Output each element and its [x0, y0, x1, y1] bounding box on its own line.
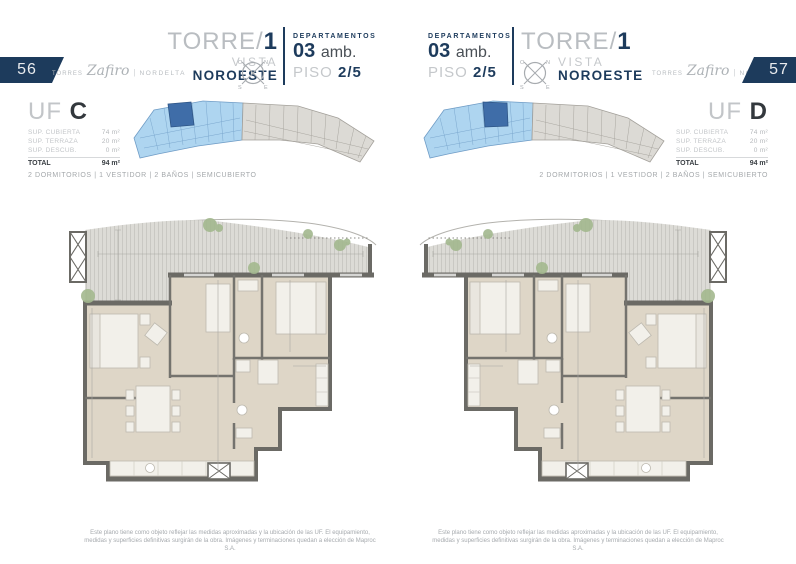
surface-table-right: SUP. CUBIERTA74 m² SUP. TERRAZA20 m² SUP…	[676, 128, 768, 167]
brand-name: Zafiro	[687, 63, 730, 79]
svg-text:O: O	[520, 60, 525, 66]
surface-row: SUP. TERRAZA20 m²	[28, 137, 120, 146]
header-divider-left	[283, 27, 285, 85]
dept-block-left: DEPARTAMENTOS 03 amb. PISO 2/5	[293, 33, 376, 81]
surface-row: SUP. TERRAZA20 m²	[676, 137, 768, 146]
brand-divider: |	[133, 68, 135, 77]
tower-title-left: TORRE/1	[140, 28, 278, 56]
keyplan-highlight-unit-d	[483, 102, 508, 127]
dept-label: DEPARTAMENTOS	[428, 33, 511, 40]
brand-divider: |	[733, 68, 735, 77]
svg-text:N: N	[264, 60, 268, 66]
surface-row: SUP. CUBIERTA74 m²	[28, 128, 120, 137]
surface-row: SUP. CUBIERTA74 m²	[676, 128, 768, 137]
surface-table-left: SUP. CUBIERTA74 m² SUP. TERRAZA20 m² SUP…	[28, 128, 120, 167]
disclaimer-right: Este plano tiene como objeto reflejar la…	[428, 529, 728, 553]
disclaimer-left: Este plano tiene como objeto reflejar la…	[80, 529, 380, 553]
dept-floor: PISO 2/5	[293, 64, 376, 81]
brand-prefix: Torres	[52, 71, 83, 77]
dept-units: 03 amb.	[428, 40, 511, 64]
features-left: 2 DORMITORIOS | 1 VESTIDOR | 2 BAÑOS | S…	[28, 172, 257, 179]
brand-prefix: Torres	[652, 71, 683, 77]
surface-row: SUP. DESCUB.0 m²	[28, 146, 120, 155]
keyplan-right	[418, 96, 668, 170]
svg-text:O: O	[238, 60, 243, 66]
svg-text:E: E	[264, 85, 268, 90]
unit-id-right: UF D	[676, 98, 768, 126]
surface-row: SUP. DESCUB.0 m²	[676, 146, 768, 155]
keyplan-highlight-unit-c	[168, 102, 194, 127]
dept-block-right: DEPARTAMENTOS 03 amb. PISO 2/5	[428, 33, 511, 81]
page-number-right-value: 57	[769, 61, 789, 79]
keyplan-left	[128, 96, 378, 170]
brand-name: Zafiro	[87, 63, 130, 79]
floorplan-uf-d	[418, 218, 738, 486]
svg-text:S: S	[520, 85, 524, 90]
page-number-right: 57	[742, 57, 796, 83]
svg-text:S: S	[238, 85, 242, 90]
dept-units: 03 amb.	[293, 40, 376, 64]
unit-id-left: UF C	[28, 98, 88, 126]
svg-text:E: E	[546, 85, 550, 90]
features-right: 2 DORMITORIOS | 1 VESTIDOR | 2 BAÑOS | S…	[468, 172, 768, 179]
svg-text:N: N	[546, 60, 550, 66]
surface-total: TOTAL94 m²	[676, 160, 768, 167]
dept-floor: PISO 2/5	[428, 64, 511, 81]
tower-title-right: TORRE/1	[521, 28, 661, 56]
page-number-left-value: 56	[17, 61, 37, 79]
compass-icon: O N S E	[518, 56, 552, 90]
dept-label: DEPARTAMENTOS	[293, 33, 376, 40]
compass-icon: O N S E	[236, 56, 270, 90]
header-divider-right	[512, 27, 514, 85]
surface-total: TOTAL94 m²	[28, 160, 120, 167]
brochure-spread: 56 Torres Zafiro | NORDELTA TORRE/1 VIST…	[0, 0, 796, 564]
floorplan-uf-c	[58, 218, 378, 486]
